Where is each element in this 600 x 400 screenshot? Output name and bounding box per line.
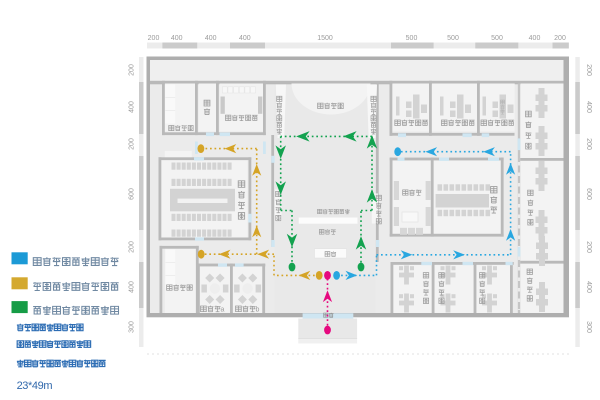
svg-text:400: 400 xyxy=(239,35,251,42)
svg-text:600: 600 xyxy=(129,188,136,200)
svg-text:200: 200 xyxy=(585,241,592,253)
svg-text:600: 600 xyxy=(585,188,592,200)
svg-text:200: 200 xyxy=(585,138,592,150)
svg-text:200: 200 xyxy=(129,138,136,150)
svg-text:500: 500 xyxy=(406,35,418,42)
svg-text:23*49m: 23*49m xyxy=(17,380,53,392)
svg-text:500: 500 xyxy=(447,35,459,42)
svg-text:200: 200 xyxy=(585,64,592,76)
svg-text:400: 400 xyxy=(529,35,541,42)
svg-text:a: a xyxy=(221,306,225,313)
svg-text:400: 400 xyxy=(129,101,136,113)
svg-text:400: 400 xyxy=(171,35,183,42)
svg-text:b: b xyxy=(256,306,260,313)
svg-text:1500: 1500 xyxy=(317,35,333,42)
svg-text:500: 500 xyxy=(491,35,503,42)
svg-text:200: 200 xyxy=(129,64,136,76)
svg-text:400: 400 xyxy=(129,281,136,293)
svg-text:300: 300 xyxy=(129,321,136,333)
svg-text:400: 400 xyxy=(585,101,592,113)
svg-text:300: 300 xyxy=(585,321,592,333)
svg-text:200: 200 xyxy=(129,241,136,253)
svg-text:200: 200 xyxy=(554,35,566,42)
svg-text:400: 400 xyxy=(585,281,592,293)
svg-text:400: 400 xyxy=(205,35,217,42)
svg-text:200: 200 xyxy=(148,35,160,42)
